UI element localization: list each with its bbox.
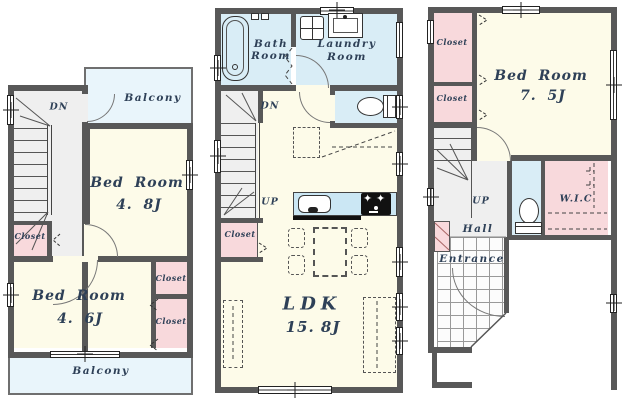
window (214, 140, 221, 173)
refrigerator-space (293, 127, 320, 158)
window (610, 294, 617, 313)
window (427, 188, 434, 206)
closet-b (434, 86, 472, 122)
toilet-icon (519, 198, 539, 224)
balcony-bottom-label: Balcony (72, 365, 129, 377)
stair-handrail (255, 123, 260, 218)
washer-icon (300, 16, 324, 40)
faucet-icon (308, 207, 318, 213)
bath-fixture-icon (261, 13, 269, 20)
counter-edge (293, 216, 361, 220)
burner-icon: ✦ (376, 192, 385, 205)
burner-icon (374, 206, 378, 210)
bedroom-4-6-name-label: Bed Room (32, 288, 126, 304)
sofa (363, 297, 396, 373)
closet-a-label: Closet (155, 273, 186, 283)
floor-plan: ✦ ✦ (0, 0, 629, 400)
bathtub-icon (222, 16, 249, 81)
window (258, 386, 332, 394)
closet-b-label: Closet (155, 316, 186, 326)
wall (428, 7, 434, 352)
window (427, 20, 434, 44)
closet-a (434, 13, 472, 82)
stairs-dn-label: DN (50, 102, 69, 113)
tv-board (223, 300, 243, 368)
window (396, 327, 403, 355)
window (502, 6, 540, 14)
toilet-tank (383, 95, 396, 118)
wall (611, 7, 617, 240)
window (7, 95, 14, 125)
window (610, 50, 617, 120)
stair-handrail (47, 125, 52, 215)
shoe-cabinet (434, 221, 450, 252)
wic-label: W.I.C (560, 194, 593, 205)
stairs-dn-label: DN (261, 101, 280, 112)
bedroom-7-5-size-label: 7. 5J (520, 88, 566, 104)
window (7, 283, 14, 307)
bedroom-4-8-size-label: 4. 8J (116, 197, 162, 213)
chair (351, 255, 368, 275)
balcony-top-label: Balcony (124, 92, 181, 104)
window (396, 293, 403, 321)
bedroom-4-6-size-label: 4. 6J (57, 311, 103, 327)
closet-ldk-label: Closet (224, 229, 255, 239)
wall (507, 161, 512, 235)
window (396, 22, 403, 58)
closet-a-label: Closet (436, 37, 467, 47)
closet-hall-label: Closet (14, 231, 45, 241)
entrance-label: Entrance (439, 253, 505, 265)
wall (511, 155, 611, 161)
bath-room-label-2: Room (251, 50, 291, 62)
faucet-icon (343, 15, 347, 19)
burner-icon: ✦ (363, 192, 372, 205)
window (396, 152, 403, 176)
wall (611, 313, 617, 390)
bath-room-label-1: Bath (254, 38, 288, 50)
door-opening (330, 95, 335, 121)
sink-icon (328, 13, 363, 38)
sink-inner (333, 18, 358, 33)
toilet-icon (357, 97, 384, 116)
wall (432, 382, 472, 388)
stairs-up-label: UP (261, 197, 278, 208)
chair (351, 228, 368, 248)
stove-icon: ✦ ✦ (361, 193, 391, 215)
bedroom-7-5-name-label: Bed Room (494, 68, 588, 84)
hall-label: Hall (463, 223, 494, 235)
window (396, 247, 403, 277)
ldk-name-label: LDK (283, 294, 342, 315)
laundry-room-label-1: Laundry (318, 38, 377, 50)
closet-b-label: Closet (436, 93, 467, 103)
window (396, 95, 403, 119)
laundry-room-label-2: Room (327, 51, 367, 63)
bedroom-4-8-name-label: Bed Room (90, 175, 184, 191)
grill-icon (369, 211, 378, 213)
bath-fixture-icon (251, 13, 259, 20)
window (50, 351, 120, 358)
window (214, 55, 221, 81)
kitchen-sink-icon (298, 195, 331, 213)
chair (288, 228, 305, 248)
chair (288, 255, 305, 275)
wall (611, 240, 617, 296)
stairs-up-label: UP (472, 196, 489, 207)
toilet-tank (515, 222, 542, 234)
dining-table (313, 227, 347, 277)
window (186, 160, 193, 190)
wall (507, 235, 617, 240)
ldk-size-label: 15. 8J (286, 318, 341, 336)
drain-icon (232, 64, 238, 70)
wall (434, 82, 477, 86)
